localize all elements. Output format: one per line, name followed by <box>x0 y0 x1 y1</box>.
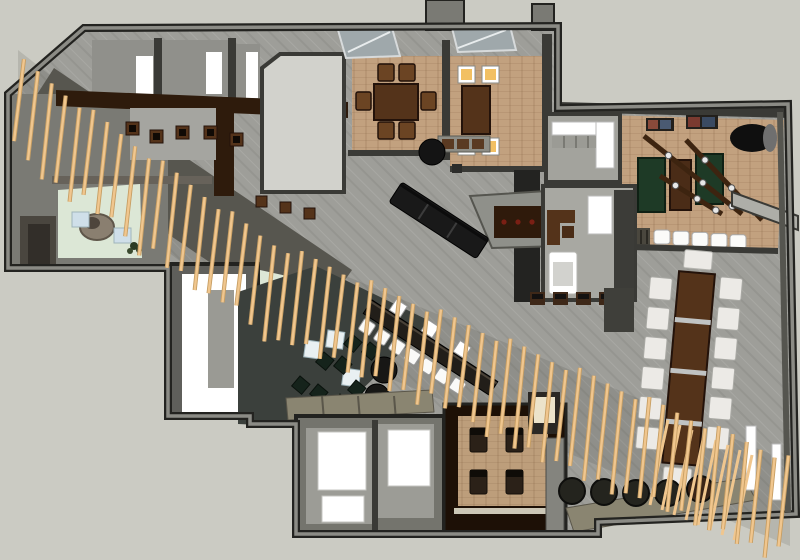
round-table <box>419 139 445 165</box>
ottoman <box>559 478 585 504</box>
chair <box>356 92 371 110</box>
chair <box>719 277 743 301</box>
chair <box>378 122 394 139</box>
counter-stool <box>711 234 727 248</box>
entry-bench <box>72 212 89 227</box>
counter-stool <box>673 231 689 245</box>
pantry-room <box>546 114 620 182</box>
entry-bench <box>114 228 131 243</box>
counter-stool <box>654 230 670 244</box>
chair <box>646 307 670 331</box>
chair <box>714 337 738 361</box>
counter-stool <box>730 235 746 249</box>
door-panel <box>388 430 430 486</box>
kitchen-room <box>262 54 344 192</box>
chair <box>716 307 740 331</box>
door-panel <box>318 432 366 490</box>
chair <box>399 122 415 139</box>
kitchen-floor <box>262 54 344 192</box>
game-table <box>638 158 665 212</box>
desk-chair <box>562 226 574 238</box>
floorplan-viewport <box>0 0 800 560</box>
dining-table <box>374 84 418 120</box>
desk <box>547 210 575 223</box>
chair <box>421 92 436 110</box>
chair <box>641 366 665 390</box>
counter-stool <box>692 232 708 246</box>
cabinet <box>588 196 612 234</box>
side-table <box>280 202 291 213</box>
door-gap <box>246 52 258 98</box>
door-gap <box>136 56 153 96</box>
stool <box>452 164 462 173</box>
kitchenette-floor <box>130 108 216 160</box>
floorplan-render <box>0 0 800 560</box>
chair <box>643 336 667 360</box>
chair <box>711 366 735 390</box>
chair <box>708 396 732 420</box>
end-chair <box>683 250 712 270</box>
counter <box>596 122 614 168</box>
side-table <box>256 196 267 207</box>
restroom-block <box>286 390 444 534</box>
door-gap <box>206 52 222 94</box>
dining-table <box>462 86 490 134</box>
chair <box>378 64 394 81</box>
door-panel <box>322 496 364 522</box>
chair <box>649 277 673 301</box>
side-table <box>304 208 315 219</box>
chair <box>399 64 415 81</box>
